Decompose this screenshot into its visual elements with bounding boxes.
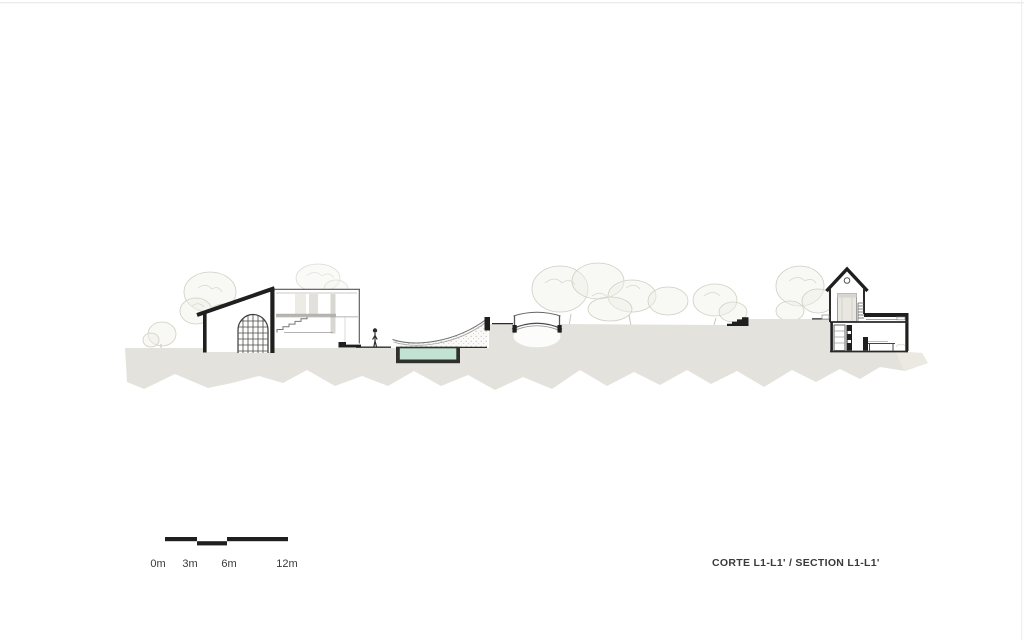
shelf-unit [847, 325, 853, 351]
scale-label-6m: 6m [221, 558, 236, 570]
bed-headboard [863, 337, 868, 351]
gable-round-window [844, 278, 850, 284]
arched-window [238, 313, 268, 353]
curved-ramp [393, 317, 491, 347]
house-door [838, 294, 857, 322]
entry-step-block [822, 315, 829, 319]
pool-water [400, 348, 457, 359]
footbridge [512, 312, 562, 347]
scale-bar: 0m 3m 6m 12m [150, 537, 297, 570]
sheet-top-edge [0, 2, 1024, 3]
tree-cluster-middle [532, 263, 688, 326]
wardrobe [834, 325, 845, 351]
ramp-end-post [485, 317, 491, 331]
section-drawing: 0m 3m 6m 12m CORTE L1-L1' / SECTION L1-L… [0, 0, 1024, 640]
center-wall [270, 288, 274, 353]
basement-left-wall [830, 322, 833, 352]
flat-roof-slab [864, 313, 909, 317]
section-drawing-sheet: 0m 3m 6m 12m CORTE L1-L1' / SECTION L1-L… [0, 0, 1024, 640]
scale-label-0m: 0m [150, 558, 165, 570]
roof-edge-slot [897, 317, 905, 320]
pond-void [514, 326, 561, 348]
sunken-pool [396, 347, 460, 363]
section-title: CORTE L1-L1' / SECTION L1-L1' [712, 557, 880, 569]
bridge-railing [514, 312, 561, 316]
left-wall [203, 311, 207, 353]
scale-label-3m: 3m [182, 558, 197, 570]
tree-above-stairs [693, 284, 747, 325]
house-stair-strip [858, 303, 864, 321]
person-figure [373, 328, 378, 347]
sheet-right-edge [1021, 0, 1022, 640]
scale-label-12m: 12m [276, 558, 297, 570]
right-house [822, 269, 909, 352]
